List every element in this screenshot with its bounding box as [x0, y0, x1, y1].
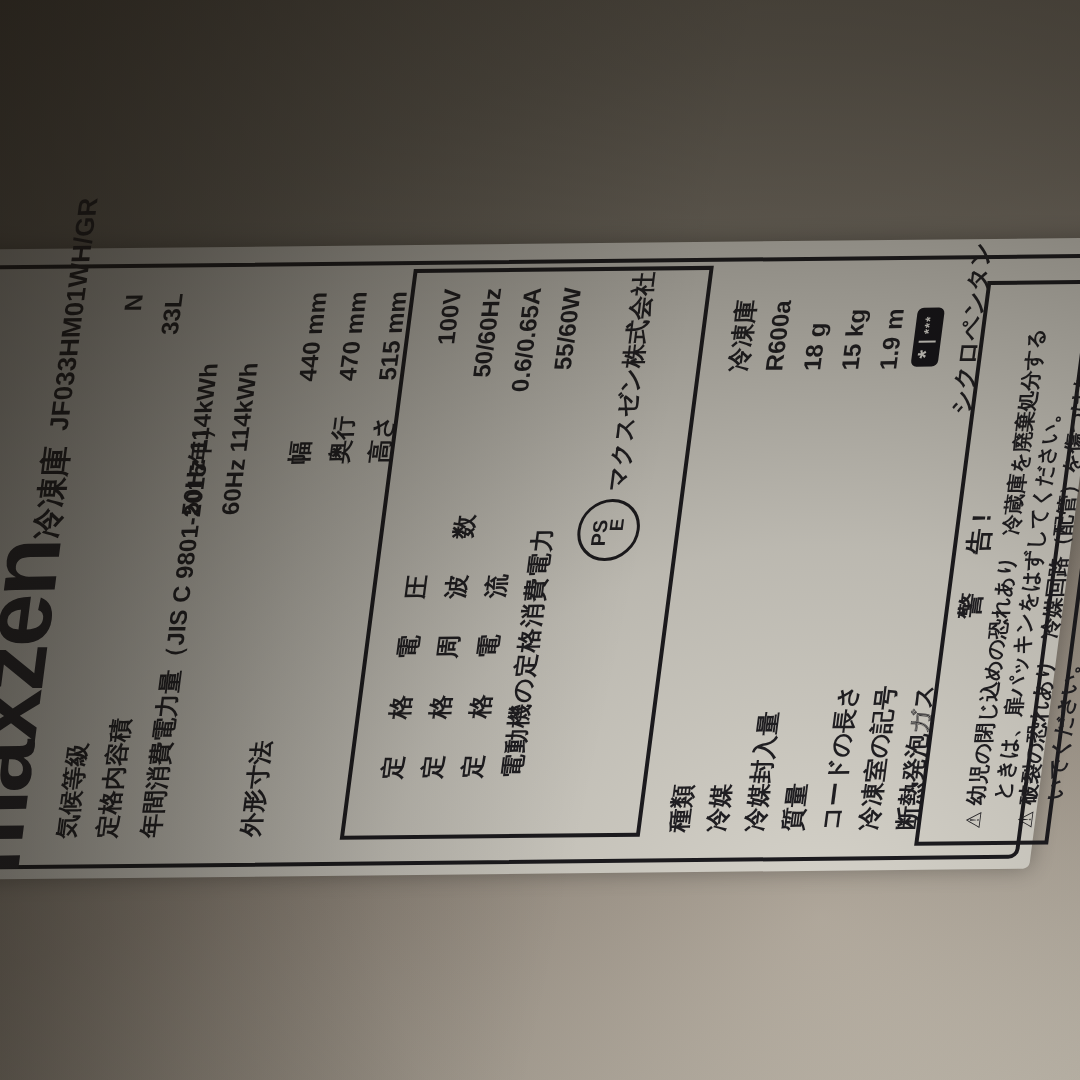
detail-label-refrigerant: 冷媒	[700, 784, 738, 832]
manufacturer-name: マクスゼン株式会社	[601, 272, 661, 491]
dimension-width-key: 幅	[283, 440, 318, 464]
rating-label-motor-power: 電動機の定格消費電力	[496, 527, 561, 778]
spec-value-rated-volume: 33L	[156, 293, 189, 335]
freezer-large-star: *	[914, 350, 937, 359]
freezer-badge-divider	[918, 341, 935, 343]
appliance-rating-label: maxzen 冷凍庫 JF033HM01WH/GR 気候等級 N 定格内容積 3…	[0, 238, 1080, 885]
rating-value-motor-power: 55/60W	[548, 287, 587, 370]
rating-label-wrapper: maxzen 冷凍庫 JF033HM01WH/GR 気候等級 N 定格内容積 3…	[0, 238, 1080, 885]
rating-value-voltage: 100V	[432, 288, 467, 344]
warning-triangle-icon-2: ⚠	[1013, 811, 1037, 829]
freezer-small-stars: ***	[922, 316, 937, 334]
pse-mark-icon: PS E	[574, 499, 644, 562]
detail-label-type: 種類	[662, 784, 700, 832]
dimension-depth-key: 奥行	[323, 416, 361, 464]
detail-label-mass: 質量	[776, 783, 814, 831]
spec-value-climate-class: N	[119, 294, 149, 312]
warning-triangle-icon: ⚠	[961, 811, 985, 829]
rating-value-frequency: 50/60Hz	[468, 288, 508, 378]
photo-scene: maxzen 冷凍庫 JF033HM01WH/GR 気候等級 N 定格内容積 3…	[0, 0, 1080, 1080]
rating-value-current: 0.6/0.65A	[506, 288, 548, 393]
pse-mark-e: E	[609, 518, 627, 531]
